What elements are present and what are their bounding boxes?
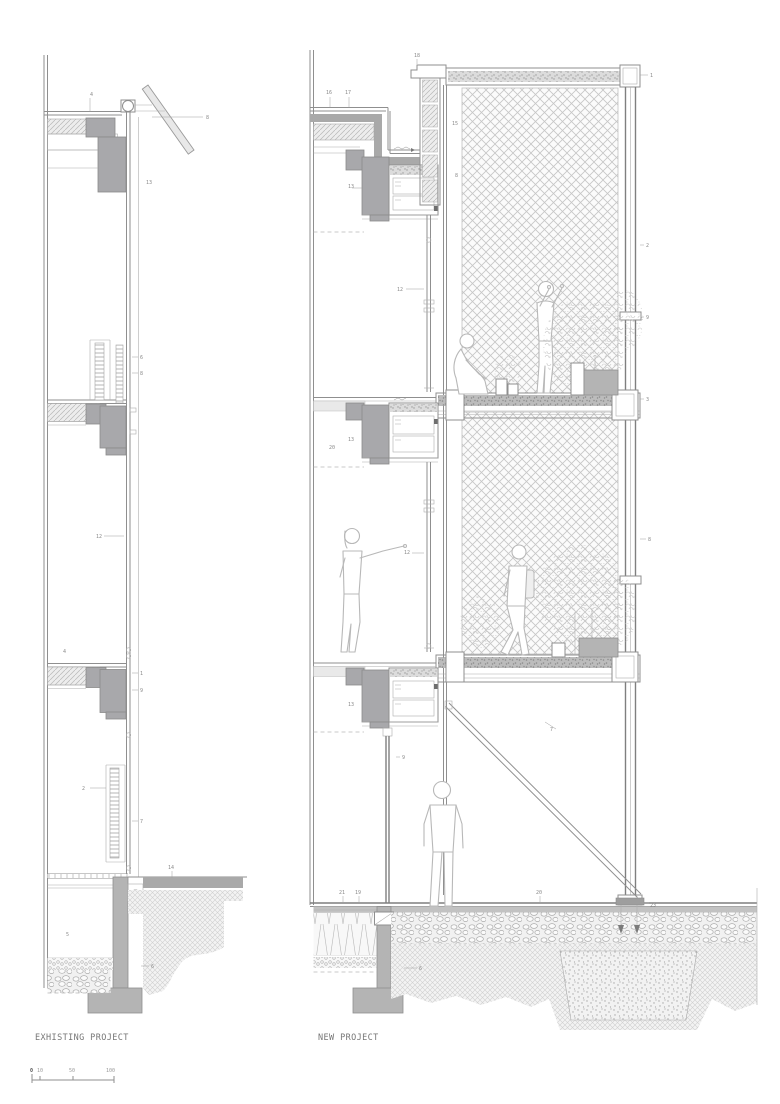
new-ground-and-foundation [310, 888, 757, 1030]
new-wall-lines [310, 50, 364, 905]
callout-number: 19 [355, 890, 361, 896]
callout-number: 9 [646, 315, 649, 321]
scale-tick-label: 50 [69, 1068, 75, 1074]
callout-number: 18 [414, 53, 420, 59]
existing-floor2-slab [48, 400, 137, 455]
callout-number: 12 [404, 550, 410, 556]
scale-tick-label: 100 [106, 1068, 115, 1074]
callout-number: 9 [140, 688, 143, 694]
callout-number: 1 [650, 73, 653, 79]
new-ground-floor-facade [383, 728, 392, 903]
new-floor2-window-box [314, 398, 439, 465]
callout-number: 13 [146, 180, 152, 186]
existing-project-label: EXHISTING PROJECT [35, 1033, 129, 1043]
new-roof-parapet [310, 97, 438, 221]
callout-number: 2 [646, 243, 649, 249]
new-mesh-structure [444, 65, 643, 905]
scale-tick-label: 0 [30, 1068, 33, 1074]
callout-number: 12 [397, 287, 403, 293]
callout-number: 13 [348, 184, 354, 190]
scale-bar: 0 10 50 100 [30, 1068, 115, 1083]
callout-number: 7 [550, 727, 553, 733]
planter-gray [579, 638, 618, 657]
new-project-drawing: 16 17 18 1 13 15 8 12 2 9 20 13 12 8 3 1… [310, 50, 757, 1030]
planter-white [571, 363, 584, 395]
planter-white [552, 643, 565, 657]
callout-number: 4 [63, 649, 66, 655]
callout-number: 2 [82, 786, 85, 792]
architectural-section-sheet: 4 8 13 6 8 12 4 1 9 2 7 14 5 6 [0, 0, 780, 1104]
existing-sunshade [121, 85, 203, 154]
callout-number: 13 [348, 702, 354, 708]
new-glazing-middle [424, 462, 434, 652]
existing-window-mullion [127, 100, 139, 877]
new-floor1-window-box [314, 663, 439, 728]
drawing-sheet: 4 8 13 6 8 12 4 1 9 2 7 14 5 6 [0, 0, 780, 1104]
callout-number: 21 [339, 890, 345, 896]
callout-number: 15 [452, 121, 458, 127]
callout-number: 8 [140, 371, 143, 377]
planter-gray [584, 370, 618, 395]
callout-number: 1 [140, 671, 143, 677]
figure-pointing-woman [340, 529, 407, 653]
scale-tick-label: 10 [37, 1068, 43, 1074]
callout-number: 8 [455, 173, 458, 179]
callout-number: 13 [348, 437, 354, 443]
callout-number: 12 [96, 534, 102, 540]
callout-number: 4 [90, 92, 93, 98]
callout-number: 16 [326, 90, 332, 96]
new-glazing-upper [424, 215, 434, 392]
callout-number: 6 [140, 355, 143, 361]
callout-number: 8 [648, 537, 651, 543]
existing-radiator-upper [90, 340, 123, 403]
new-diagonal-brace [445, 701, 641, 898]
callout-number: 6 [151, 964, 154, 970]
existing-foundation [48, 874, 248, 1013]
callout-number: 9 [402, 755, 405, 761]
callout-number: 7 [140, 819, 143, 825]
callout-number: 20 [536, 890, 542, 896]
new-project-label: NEW PROJECT [318, 1033, 379, 1043]
callout-number: 8 [206, 115, 209, 121]
existing-project-drawing: 4 8 13 6 8 12 4 1 9 2 7 14 5 6 [44, 55, 247, 1013]
callout-number: 5 [66, 932, 69, 938]
callout-number: 14 [168, 865, 174, 871]
callout-number: 17 [345, 90, 351, 96]
callout-number: 20 [329, 445, 335, 451]
callout-number: 3 [646, 397, 649, 403]
existing-wall-lines [44, 55, 48, 988]
callout-number: 6 [419, 966, 422, 972]
existing-callouts: 4 8 13 6 8 12 4 1 9 2 7 14 5 6 [63, 92, 209, 970]
existing-floor3-slab [48, 648, 131, 719]
callout-number: 23 [650, 903, 656, 909]
